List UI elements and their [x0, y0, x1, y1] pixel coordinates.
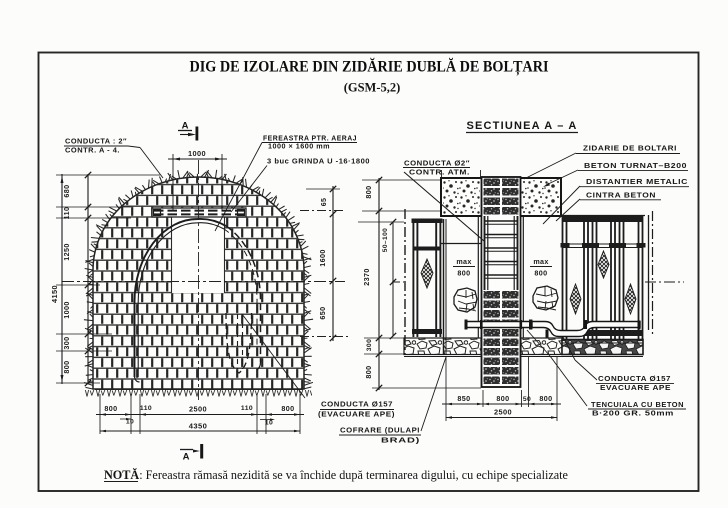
svg-text:BETON TURNAT–B200: BETON TURNAT–B200: [584, 161, 687, 170]
svg-text:800: 800: [364, 365, 373, 378]
svg-text:110: 110: [62, 207, 71, 220]
svg-text:800: 800: [364, 185, 373, 198]
svg-text:1250: 1250: [62, 243, 71, 261]
svg-text:800: 800: [281, 404, 294, 413]
svg-text:CONDUCTA Ø157: CONDUCTA Ø157: [321, 400, 393, 409]
svg-text:300: 300: [366, 339, 373, 352]
svg-text:10: 10: [265, 420, 273, 427]
svg-text:CONTR. A - 4.: CONTR. A - 4.: [65, 146, 120, 155]
svg-text:A: A: [183, 452, 190, 463]
svg-text:(GSM-5,2): (GSM-5,2): [344, 81, 401, 95]
svg-text:BRAD): BRAD): [381, 436, 420, 445]
svg-text:COFRARE (DULAPI: COFRARE (DULAPI: [340, 426, 420, 435]
svg-text:110: 110: [241, 405, 253, 412]
svg-text:300: 300: [62, 336, 71, 349]
svg-text:800: 800: [104, 404, 117, 413]
svg-text:4350: 4350: [189, 422, 208, 431]
svg-text:max: max: [533, 257, 548, 266]
svg-text:NOTĂ: Fereastra rămasă nezidit: NOTĂ: Fereastra rămasă nezidită se va în…: [104, 468, 568, 482]
svg-text:DIG DE IZOLARE DIN ZIDĂRIE DUB: DIG DE IZOLARE DIN ZIDĂRIE DUBLĂ DE BOLȚ…: [190, 57, 549, 77]
svg-text:3 buc GRINDA U -16·1800: 3 buc GRINDA U -16·1800: [267, 157, 370, 166]
svg-text:CONDUCTA Ø2″: CONDUCTA Ø2″: [404, 159, 470, 168]
svg-text:max: max: [456, 257, 471, 266]
svg-text:65: 65: [321, 198, 328, 207]
svg-text:2370: 2370: [362, 268, 371, 286]
svg-text:800: 800: [534, 269, 547, 278]
svg-text:EVACUARE APE: EVACUARE APE: [600, 383, 671, 392]
svg-text:1600: 1600: [318, 249, 327, 267]
svg-text:1000: 1000: [62, 301, 71, 319]
svg-text:800: 800: [539, 394, 552, 403]
svg-text:50: 50: [523, 396, 531, 403]
svg-text:800: 800: [62, 360, 71, 373]
svg-text:SECTIUNEA A – A: SECTIUNEA A – A: [466, 120, 577, 132]
svg-text:850: 850: [457, 394, 470, 403]
svg-text:CONDUCTA : 2″: CONDUCTA : 2″: [65, 137, 127, 146]
svg-text:CINTRA BETON: CINTRA BETON: [586, 191, 656, 200]
svg-text:50–100: 50–100: [382, 228, 389, 252]
svg-text:800: 800: [457, 269, 470, 278]
svg-text:2500: 2500: [189, 405, 207, 414]
svg-text:110: 110: [140, 405, 152, 412]
svg-text:650: 650: [318, 306, 327, 319]
svg-text:800: 800: [496, 394, 509, 403]
svg-text:B·200 GR. 50mm: B·200 GR. 50mm: [592, 409, 674, 418]
svg-text:CONDUCTA Ø157: CONDUCTA Ø157: [598, 374, 671, 383]
svg-text:2500: 2500: [494, 408, 512, 417]
svg-text:1000: 1000: [188, 149, 206, 158]
svg-text:4150: 4150: [50, 285, 59, 303]
svg-text:ZIDARIE DE BOLTARI: ZIDARIE DE BOLTARI: [583, 144, 677, 153]
svg-text:(EVACUARE APE): (EVACUARE APE): [318, 410, 395, 419]
svg-text:1000 × 1600 mm: 1000 × 1600 mm: [268, 142, 330, 151]
svg-text:DISTANTIER METALIC: DISTANTIER METALIC: [586, 177, 688, 186]
svg-text:680: 680: [62, 184, 71, 197]
svg-text:CONTR. ATM.: CONTR. ATM.: [409, 168, 470, 177]
